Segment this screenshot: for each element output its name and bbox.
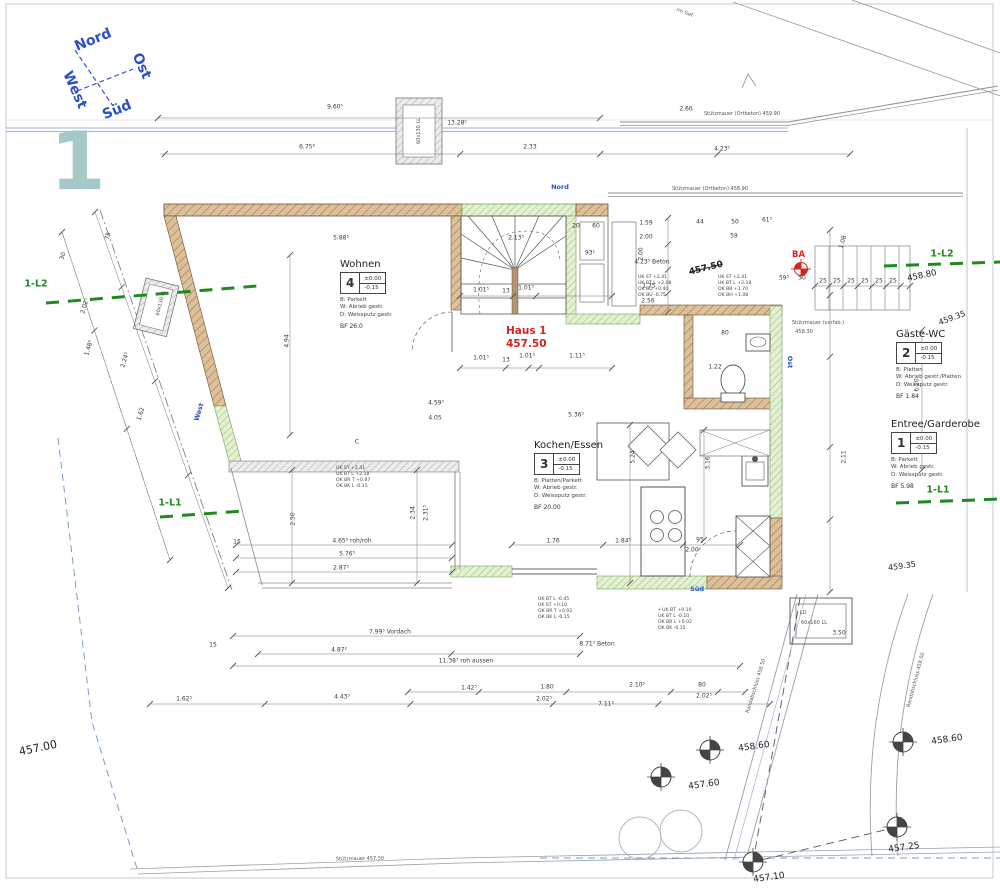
room-level-top: ±0.00 <box>554 456 579 465</box>
finish-ceiling: D: Weissputz gestr. <box>534 493 603 500</box>
room-number: 3 <box>535 454 553 474</box>
finish-wall: W: Abrieb gestr. <box>534 485 603 492</box>
room-finishes: B: Parkett W: Abrieb gestr. D: Weissputz… <box>891 457 980 479</box>
survey-point-wedge <box>743 862 753 872</box>
house-marker: Haus 1 457.50 <box>506 325 547 351</box>
room-label-entree: Entree/Garderobe 1 ±0.00-0.15 B: Parkett… <box>891 419 980 490</box>
finish-floor: B: Platten/Parkett <box>534 478 603 485</box>
room-finishes: B: Parkett W: Abrieb gestr. D: Weissputz… <box>340 297 393 319</box>
sheet-number: 1 <box>50 122 106 202</box>
room-level-top: ±0.00 <box>911 435 936 444</box>
dimension-tick <box>92 209 98 215</box>
tree <box>619 817 661 859</box>
dimension-tick <box>152 378 158 384</box>
finish-floor: B: Platten <box>896 367 961 374</box>
wc-fixtures <box>721 334 770 402</box>
finish-ceiling: D: Weissputz gestr. <box>891 472 980 479</box>
entree-wardrobe <box>700 430 770 456</box>
ba-symbol <box>791 259 811 279</box>
floor-plan-sheet: 1 Nord Ost West Süd Haus 1 457.50 BA 457… <box>0 0 1000 896</box>
house-marker-name: Haus 1 <box>506 325 547 338</box>
room-number: 2 <box>897 343 915 363</box>
room-finishes: B: Platten W: Abrieb gestr./Platten D: W… <box>896 367 961 389</box>
stair <box>461 216 566 314</box>
finish-wall: W: Abrieb gestr./Platten <box>896 374 961 381</box>
house-marker-level: 457.50 <box>506 338 547 351</box>
generated-drawing <box>59 115 925 876</box>
finish-ceiling: D: Weissputz gestr. <box>340 312 393 319</box>
plan-drawing <box>0 0 1000 896</box>
room-level-bottom: -0.15 <box>360 284 385 292</box>
dimension-tick <box>185 472 191 478</box>
survey-point-wedge <box>897 817 907 827</box>
finish-floor: B: Parkett <box>891 457 980 464</box>
room-finishes: B: Platten/Parkett W: Abrieb gestr. D: W… <box>534 478 603 500</box>
survey-point-wedge <box>700 750 710 760</box>
survey-point-wedge <box>903 732 913 742</box>
room-info-box: 4 ±0.00-0.15 <box>340 272 386 294</box>
survey-point-wedge <box>651 777 661 787</box>
room-info-box: 1 ±0.00-0.15 <box>891 432 937 454</box>
room-level-bottom: -0.15 <box>916 354 941 362</box>
room-label-gaeste-wc: Gäste-WC 2 ±0.00-0.15 B: Platten W: Abri… <box>896 329 961 400</box>
survey-point-wedge <box>661 767 671 777</box>
survey-point-wedge <box>753 852 763 862</box>
dimension-tick <box>225 585 231 591</box>
building-walls <box>164 204 782 589</box>
room-title: Kochen/Essen <box>534 440 603 451</box>
room-level-bottom: -0.15 <box>554 465 579 473</box>
dimension-tick <box>59 229 65 235</box>
dimension-tick <box>91 327 97 333</box>
room-title: Gäste-WC <box>896 329 961 340</box>
exterior-stair <box>815 246 910 310</box>
dimension-line <box>95 212 228 588</box>
room-level-top: ±0.00 <box>360 275 385 284</box>
dimension-tick <box>167 557 173 563</box>
page-frame <box>6 4 993 878</box>
room-number: 4 <box>341 273 359 293</box>
room-label-wohnen: Wohnen 4 ±0.00-0.15 B: Parkett W: Abrieb… <box>340 259 393 330</box>
room-number: 1 <box>892 433 910 453</box>
tree <box>660 810 702 852</box>
room-area: BF 26.0 <box>340 323 393 330</box>
finish-wall: W: Abrieb gestr. <box>340 304 393 311</box>
survey-point-wedge <box>893 742 903 752</box>
survey-point-wedge <box>887 827 897 837</box>
finish-floor: B: Parkett <box>340 297 393 304</box>
room-area: BF 1.84 <box>896 393 961 400</box>
room-label-kochen: Kochen/Essen 3 ±0.00-0.15 B: Platten/Par… <box>534 440 603 511</box>
dimension-tick <box>124 426 130 432</box>
ba-label: BA <box>792 250 805 260</box>
interior-partitions <box>580 216 636 306</box>
site-boundaries <box>6 0 1000 874</box>
room-title: Entree/Garderobe <box>891 419 980 430</box>
room-info-box: 3 ±0.00-0.15 <box>534 453 580 475</box>
room-area: BF 20.00 <box>534 504 603 511</box>
survey-point-wedge <box>710 740 720 750</box>
room-title: Wohnen <box>340 259 393 270</box>
room-area: BF 5.98 <box>891 483 980 490</box>
dining-furniture <box>597 423 696 480</box>
finish-ceiling: D: Weissputz gestr. <box>896 382 961 389</box>
room-level-top: ±0.00 <box>916 345 941 354</box>
dimension-tick <box>119 284 125 290</box>
room-level-bottom: -0.15 <box>911 444 936 452</box>
finish-wall: W: Abrieb gestr. <box>891 464 980 471</box>
room-info-box: 2 ±0.00-0.15 <box>896 342 942 364</box>
